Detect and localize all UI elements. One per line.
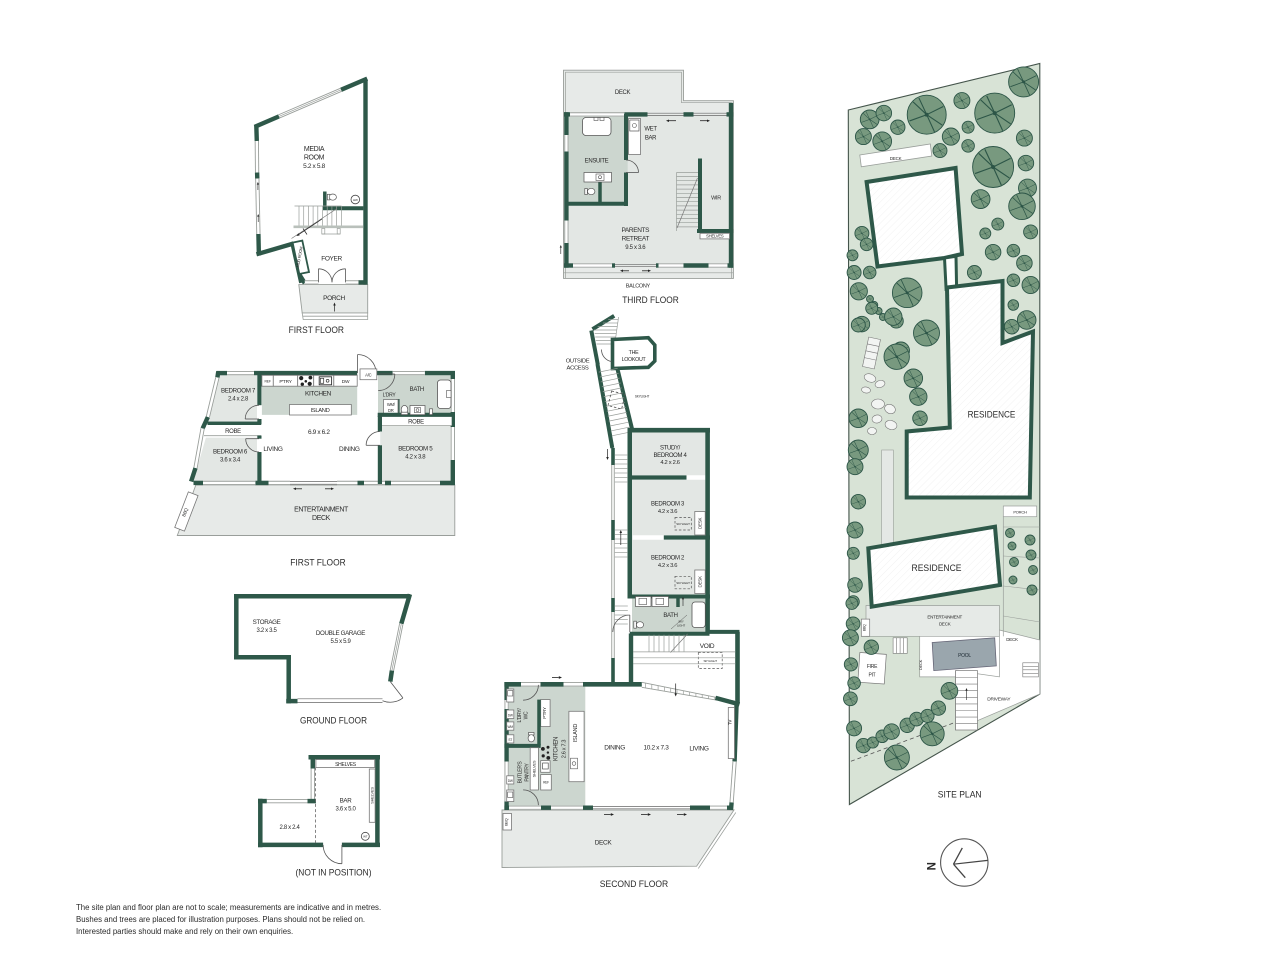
svg-text:SECOND FLOOR: SECOND FLOOR [600,879,669,889]
svg-text:DINING: DINING [339,446,360,453]
svg-text:SHELVES: SHELVES [531,760,536,777]
svg-text:Interested parties should make: Interested parties should make and rely … [76,927,293,936]
svg-text:WC: WC [524,711,530,719]
svg-text:PORCH: PORCH [323,295,345,302]
svg-text:SHELVES: SHELVES [370,787,375,804]
svg-text:STORAGE: STORAGE [253,619,281,626]
svg-text:ROBE: ROBE [225,429,241,435]
svg-text:ROOM: ROOM [304,155,325,162]
svg-text:VOID: VOID [700,643,715,650]
svg-text:TV: TV [728,720,733,725]
svg-text:ENSUITE: ENSUITE [585,159,609,165]
svg-text:BEDROOM 3: BEDROOM 3 [651,502,685,508]
svg-text:DESK: DESK [698,576,703,588]
svg-text:RETREAT: RETREAT [622,236,650,243]
svg-text:Bushes and trees are placed fo: Bushes and trees are placed for illustra… [76,915,365,924]
svg-text:HW: HW [353,198,358,202]
svg-text:P'TRY: P'TRY [542,707,547,719]
svg-text:6.9 x 6.2: 6.9 x 6.2 [308,429,330,436]
svg-text:BEDROOM 6: BEDROOM 6 [213,449,248,456]
svg-text:FOYER: FOYER [321,256,342,263]
svg-text:FIRST FLOOR: FIRST FLOOR [290,558,346,568]
svg-text:BBQ: BBQ [863,624,867,631]
svg-text:DRIVEWAY: DRIVEWAY [987,697,1011,703]
svg-text:KITCHEN: KITCHEN [305,391,332,398]
svg-text:2.8 x 2.4: 2.8 x 2.4 [279,825,300,831]
svg-text:OUTSIDE: OUTSIDE [566,359,590,365]
svg-text:DW: DW [342,379,350,385]
svg-text:LIVING: LIVING [263,446,282,453]
svg-text:ST: ST [508,738,512,742]
svg-text:RESIDENCE: RESIDENCE [968,410,1016,420]
svg-text:WM: WM [508,725,514,729]
svg-text:SHELVES: SHELVES [706,234,724,239]
svg-text:FIRST FLOOR: FIRST FLOOR [289,325,345,335]
svg-text:DOUBLE GARAGE: DOUBLE GARAGE [316,630,365,637]
svg-text:SKYLIGHT: SKYLIGHT [676,522,690,526]
svg-text:10.2 x 7.3: 10.2 x 7.3 [644,745,670,752]
svg-text:PARENTS: PARENTS [621,227,650,234]
svg-text:DECK: DECK [615,90,631,96]
svg-text:BEDROOM 4: BEDROOM 4 [653,453,687,459]
svg-text:THE: THE [629,350,639,356]
svg-text:3.2 x 3.5: 3.2 x 3.5 [256,628,277,634]
svg-text:WIR: WIR [711,196,721,202]
svg-text:The site plan and floor plan a: The site plan and floor plan are not to … [76,903,381,912]
svg-text:ENTERTAINMENT: ENTERTAINMENT [294,507,349,514]
svg-text:BEDROOM 5: BEDROOM 5 [398,446,433,453]
svg-text:3.6 x 5.0: 3.6 x 5.0 [335,807,356,813]
svg-text:LIVING: LIVING [689,746,708,753]
svg-text:ISLAND: ISLAND [573,724,579,742]
svg-text:4.2 x 2.6: 4.2 x 2.6 [660,460,679,466]
svg-text:A/C: A/C [365,372,371,377]
svg-text:P'TRY: P'TRY [279,379,292,385]
svg-text:ROBE: ROBE [408,419,424,425]
svg-text:LIGHT: LIGHT [677,624,685,628]
svg-text:DECK: DECK [595,840,613,847]
svg-text:BUTLER'S: BUTLER'S [518,761,524,784]
svg-text:SKYLIGHT: SKYLIGHT [676,581,690,585]
svg-text:BATH: BATH [410,387,424,393]
svg-text:FIRE: FIRE [867,664,878,670]
svg-text:PANTRY: PANTRY [525,762,531,781]
svg-text:DINING: DINING [604,745,625,752]
svg-text:DECK: DECK [1006,637,1018,642]
svg-text:DR: DR [388,408,394,413]
svg-text:4.2 x 3.6: 4.2 x 3.6 [658,563,677,569]
svg-text:WM/: WM/ [387,402,396,407]
svg-text:2.4 x 2.8: 2.4 x 2.8 [228,397,249,403]
svg-text:DW: DW [508,779,513,783]
svg-text:BAR: BAR [340,798,353,805]
svg-text:SHELVES: SHELVES [335,762,357,768]
svg-text:SKYLIGHT: SKYLIGHT [635,395,650,399]
svg-text:POOL: POOL [958,653,971,659]
svg-text:ISLAND: ISLAND [310,408,329,414]
svg-text:3.6 x 3.4: 3.6 x 3.4 [220,458,241,464]
svg-text:WT: WT [363,835,368,839]
svg-text:REF: REF [543,781,549,785]
svg-text:5.5 x 5.9: 5.5 x 5.9 [330,639,351,645]
svg-text:4.2 x 3.8: 4.2 x 3.8 [405,455,426,461]
svg-text:DESK: DESK [698,517,703,529]
svg-text:SITE PLAN: SITE PLAN [938,790,982,800]
svg-text:WET: WET [644,127,657,133]
svg-text:SKYLIGHT: SKYLIGHT [703,659,717,663]
svg-text:L'DRY/: L'DRY/ [517,708,523,723]
svg-text:BBQ: BBQ [504,818,508,826]
svg-text:BEDROOM 7: BEDROOM 7 [221,388,256,395]
svg-text:2.6 x 7.3: 2.6 x 7.3 [562,740,568,759]
svg-text:PORCH: PORCH [1013,509,1027,514]
svg-text:DW: DW [508,714,513,718]
svg-text:DECK: DECK [312,515,331,522]
svg-text:4.2 x 3.6: 4.2 x 3.6 [658,509,677,515]
svg-text:LOOKOUT: LOOKOUT [622,357,647,363]
svg-text:9.5 x 3.6: 9.5 x 3.6 [625,245,646,251]
svg-text:DECK: DECK [939,622,951,627]
svg-text:PIT: PIT [869,673,876,679]
svg-text:N: N [927,862,939,870]
svg-text:DECK: DECK [890,156,902,161]
svg-text:BEDROOM 2: BEDROOM 2 [651,556,685,562]
svg-text:KITCHEN: KITCHEN [554,737,560,761]
svg-text:THIRD FLOOR: THIRD FLOOR [622,295,679,305]
svg-text:L'DRY: L'DRY [383,392,397,398]
svg-text:MEDIA: MEDIA [304,146,325,153]
svg-text:RESIDENCE: RESIDENCE [912,563,962,573]
svg-text:(NOT IN POSITION): (NOT IN POSITION) [296,868,372,878]
svg-text:ACCESS: ACCESS [567,366,589,372]
svg-text:ENTERTAINMENT: ENTERTAINMENT [927,615,962,620]
svg-text:BATH: BATH [663,613,677,619]
svg-text:BAR: BAR [645,136,657,142]
svg-text:GROUND FLOOR: GROUND FLOOR [300,716,367,726]
svg-text:5.2 x 5.8: 5.2 x 5.8 [303,163,325,170]
svg-text:BALCONY: BALCONY [626,284,651,290]
svg-text:DECK: DECK [918,659,923,670]
svg-text:STUDY/: STUDY/ [660,446,681,452]
svg-text:REF: REF [264,380,270,384]
